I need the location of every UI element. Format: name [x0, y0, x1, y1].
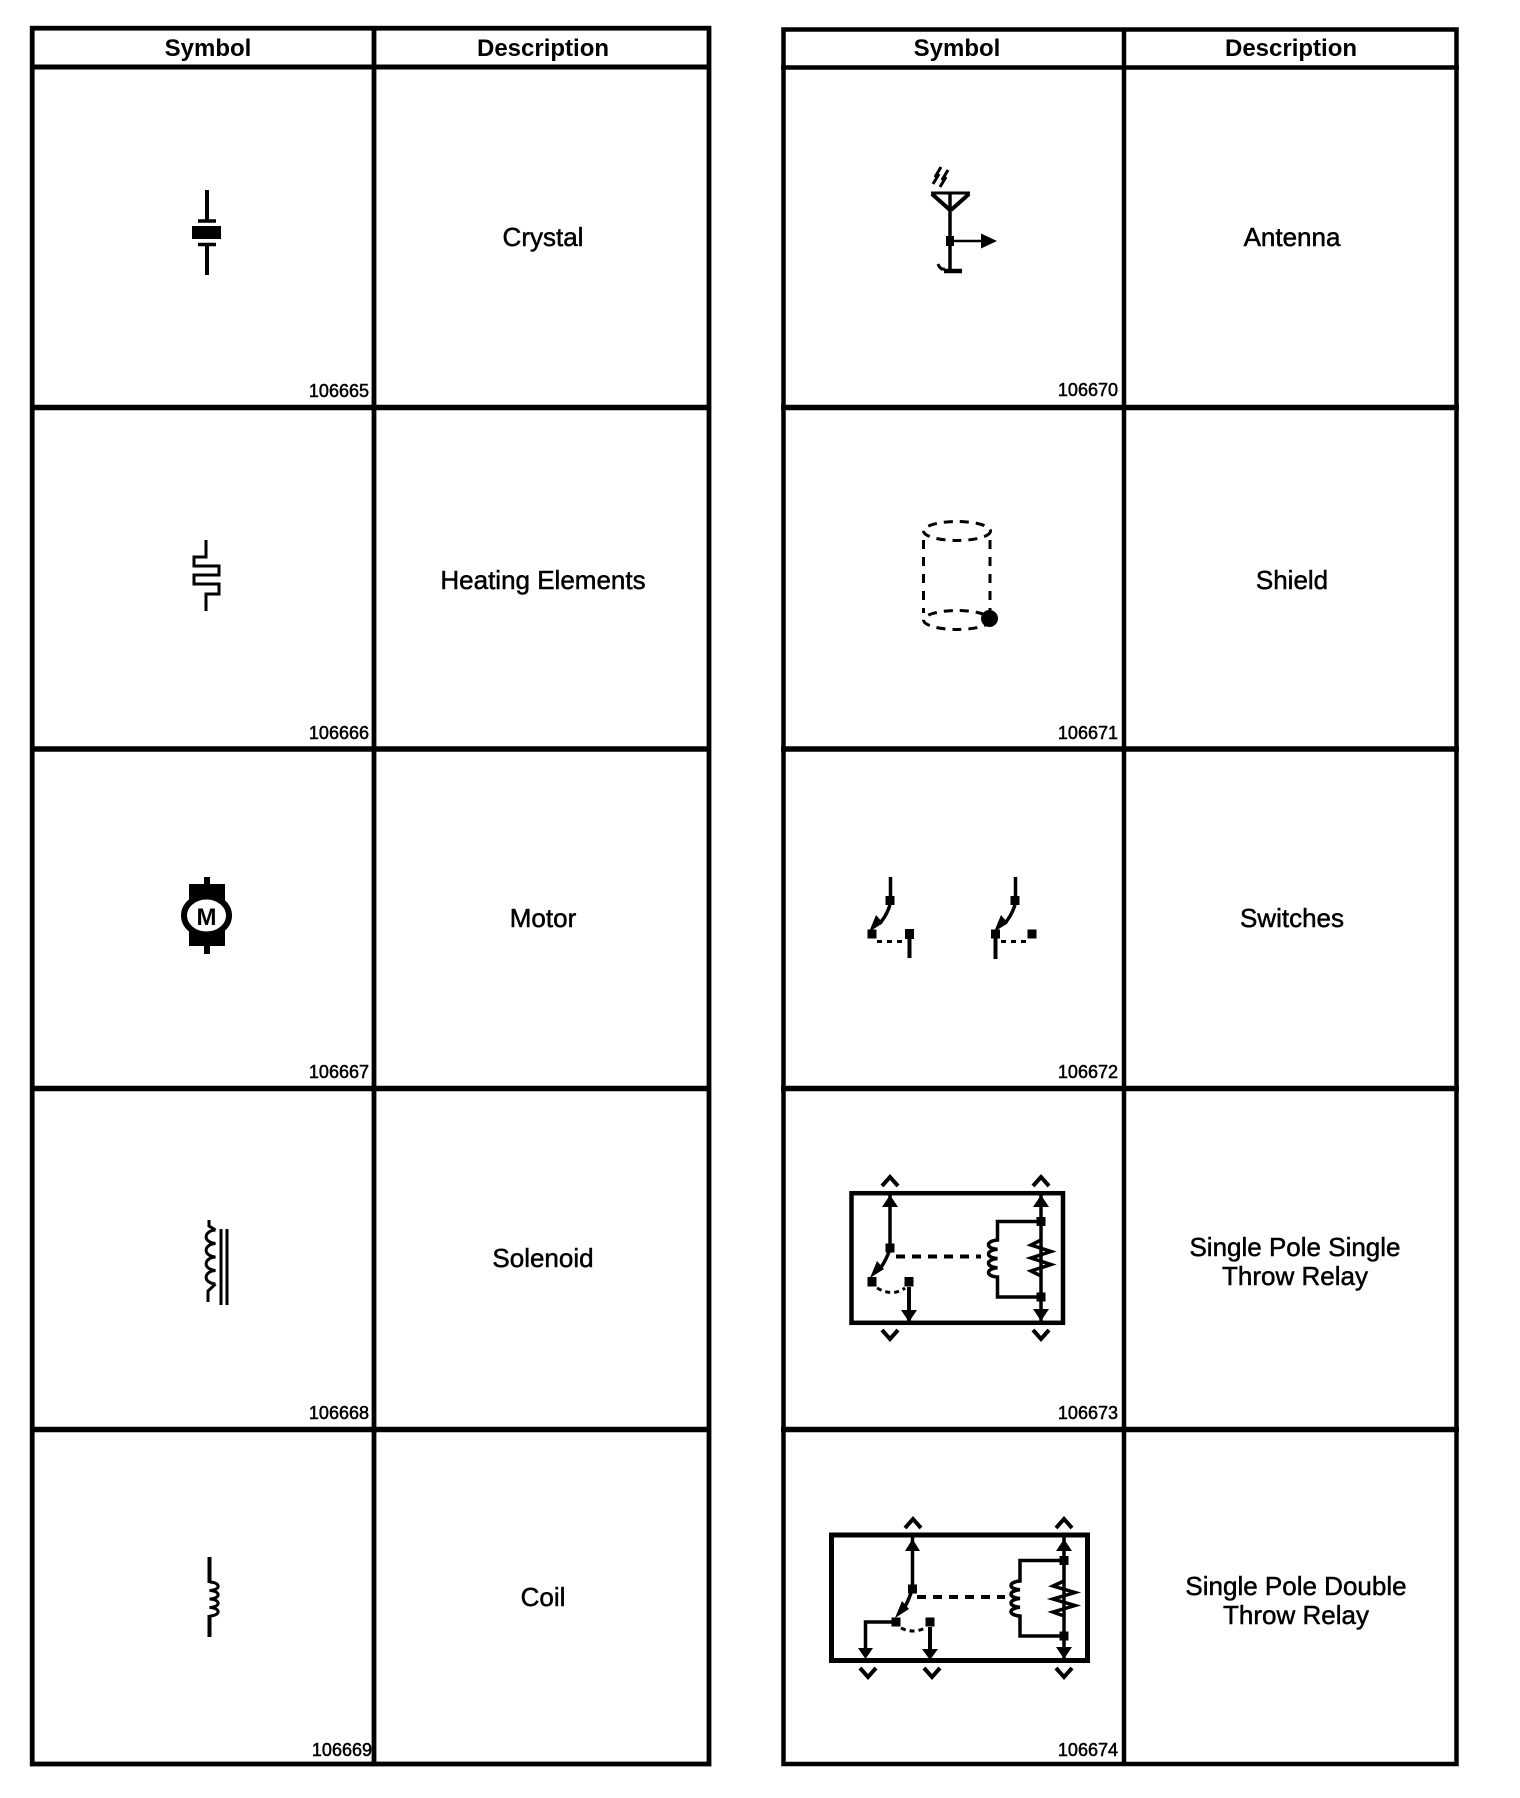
- svg-text:Description: Description: [1225, 35, 1357, 62]
- svg-text:Heating Elements: Heating Elements: [440, 565, 645, 595]
- svg-text:Shield: Shield: [1256, 565, 1328, 595]
- svg-text:106673: 106673: [1058, 1403, 1118, 1423]
- svg-text:106672: 106672: [1058, 1062, 1118, 1082]
- svg-text:Solenoid: Solenoid: [492, 1243, 593, 1273]
- svg-text:106671: 106671: [1058, 723, 1118, 743]
- svg-text:106667: 106667: [309, 1062, 369, 1082]
- svg-text:Motor: Motor: [510, 903, 577, 933]
- svg-text:Throw Relay: Throw Relay: [1222, 1261, 1368, 1291]
- svg-text:Description: Description: [477, 35, 609, 62]
- svg-text:Antenna: Antenna: [1244, 222, 1341, 252]
- svg-text:106665: 106665: [309, 381, 369, 401]
- svg-text:Single Pole Double: Single Pole Double: [1185, 1571, 1406, 1601]
- svg-text:Symbol: Symbol: [914, 35, 1001, 62]
- svg-text:Switches: Switches: [1240, 903, 1344, 933]
- svg-text:Coil: Coil: [521, 1582, 566, 1612]
- svg-text:Symbol: Symbol: [165, 35, 252, 62]
- svg-text:106668: 106668: [309, 1403, 369, 1423]
- svg-text:106670: 106670: [1058, 380, 1118, 400]
- svg-text:Single Pole Single: Single Pole Single: [1189, 1232, 1400, 1262]
- svg-text:Throw Relay: Throw Relay: [1223, 1600, 1369, 1630]
- svg-text:M: M: [197, 904, 217, 931]
- svg-text:106674: 106674: [1058, 1740, 1118, 1760]
- svg-text:Crystal: Crystal: [503, 222, 584, 252]
- svg-text:106666: 106666: [309, 723, 369, 743]
- svg-text:106669: 106669: [312, 1740, 372, 1760]
